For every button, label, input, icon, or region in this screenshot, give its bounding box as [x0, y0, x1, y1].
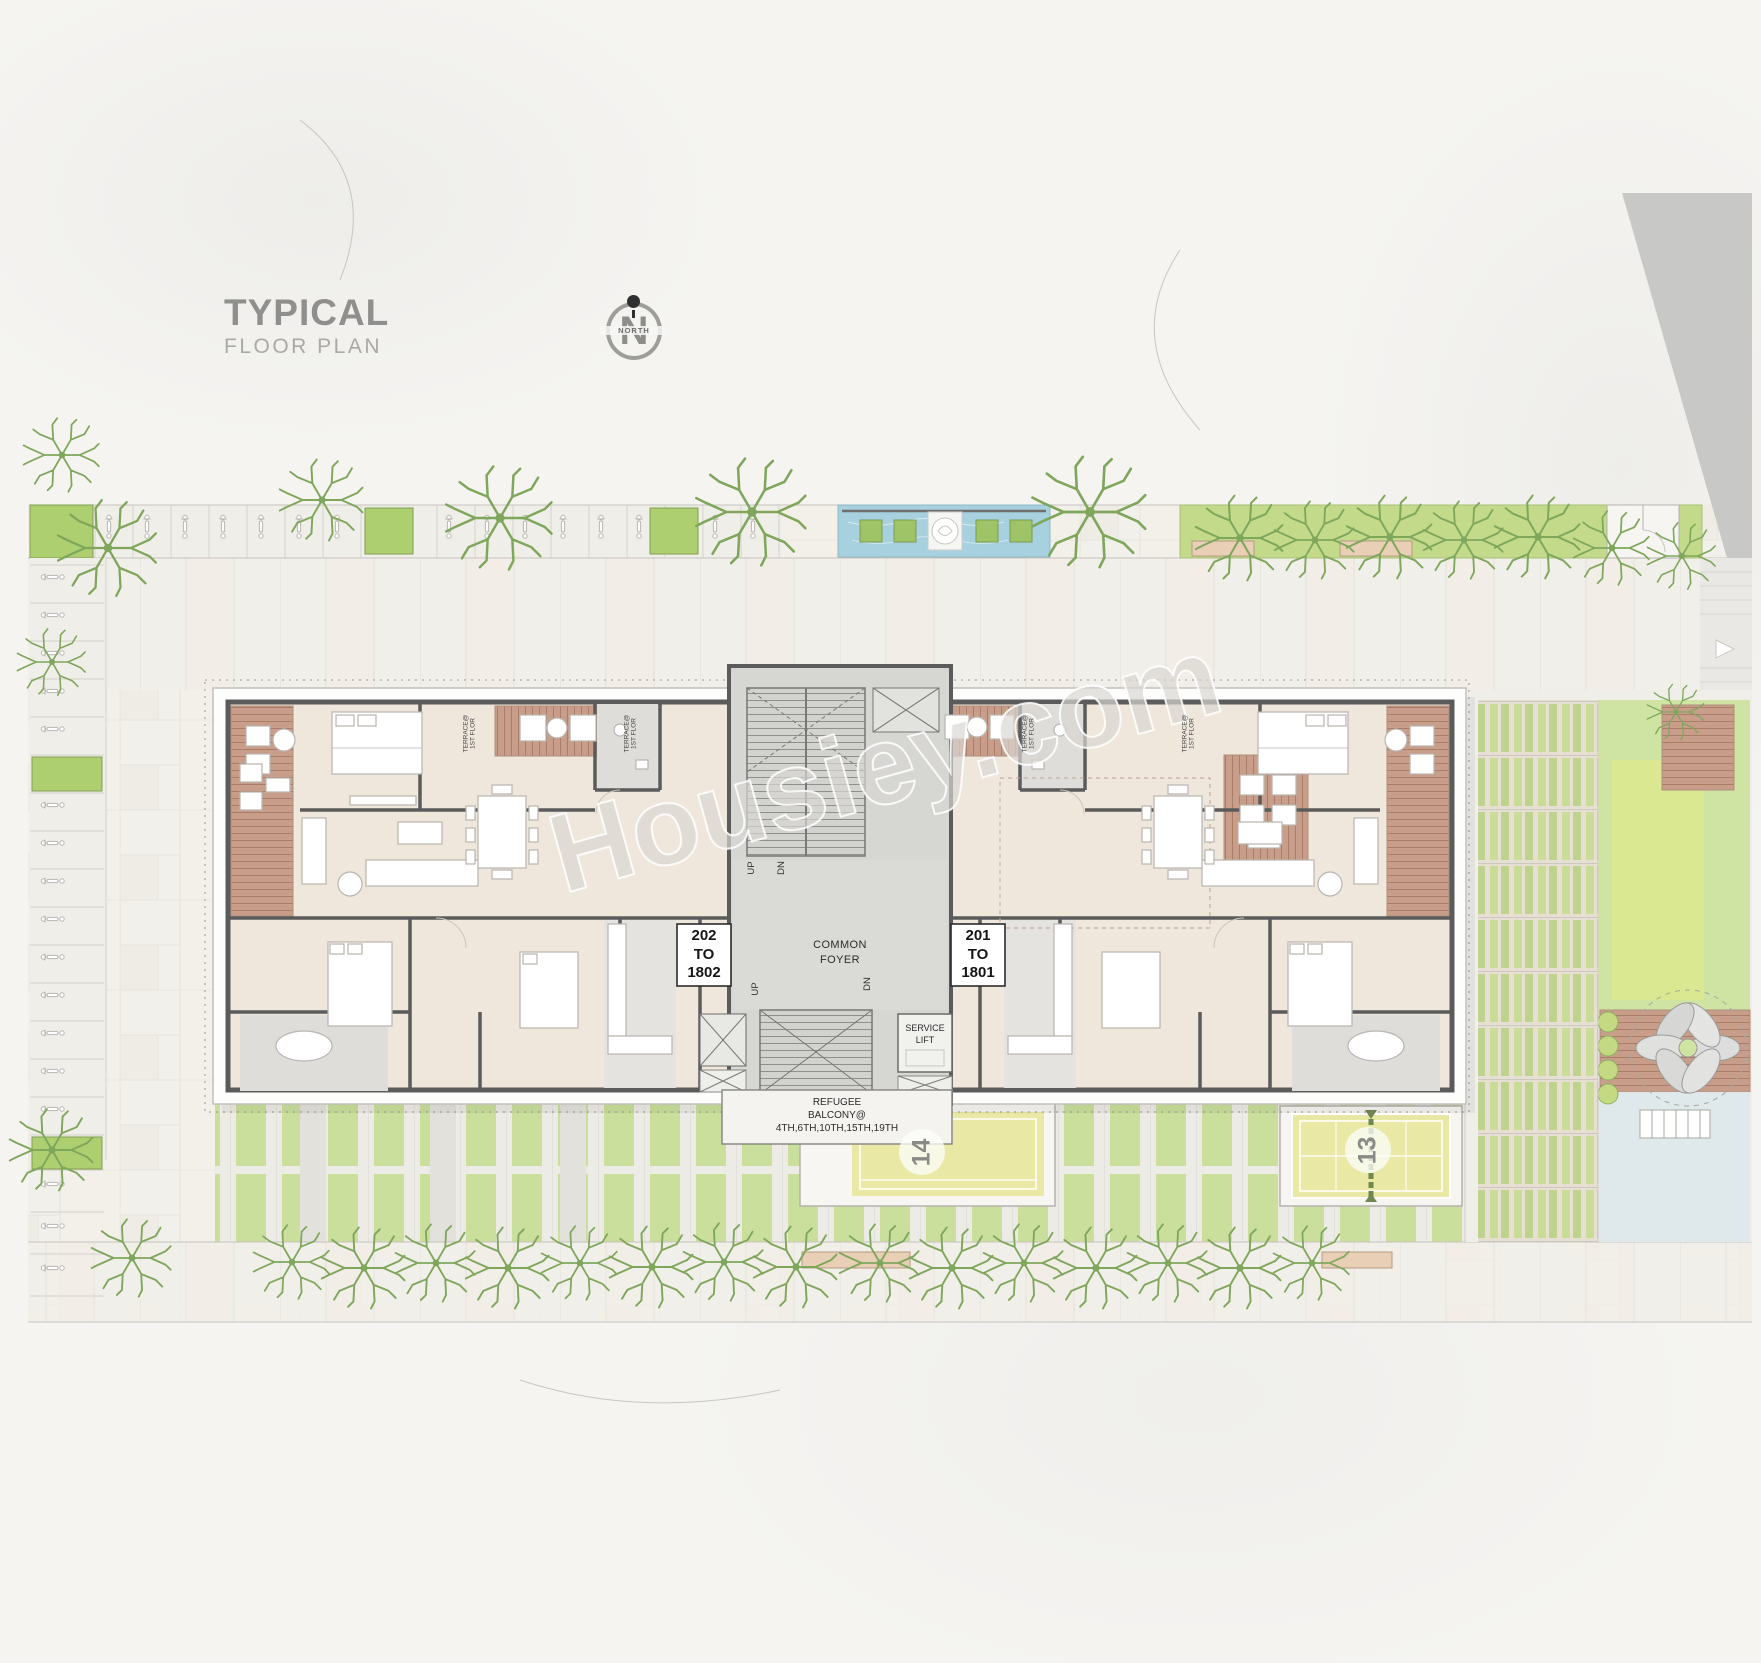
right-path — [1700, 558, 1752, 690]
bush — [1598, 1012, 1618, 1032]
terrace-label: TERRACE@ 1ST FLOR — [624, 706, 639, 762]
planter — [365, 508, 413, 554]
bush — [1598, 1036, 1618, 1056]
planter — [650, 508, 698, 554]
water-planter — [1010, 520, 1032, 542]
north-stem-icon — [632, 310, 635, 318]
north-dot-icon — [627, 295, 640, 308]
court-13-badge: 13 — [1345, 1127, 1391, 1173]
common-foyer-area — [733, 860, 947, 1010]
bench — [1322, 1252, 1392, 1268]
water-planter — [860, 520, 882, 542]
unit-left-top-floor: 1802 — [687, 964, 720, 983]
stairs-up-label: UP — [750, 974, 762, 1004]
court-14-badge: 14 — [899, 1129, 945, 1175]
tree-icon — [24, 418, 99, 492]
right-garden — [1465, 690, 1752, 1242]
bush — [1598, 1084, 1618, 1104]
water-feature — [838, 505, 1050, 557]
unit-left-to: TO — [694, 946, 715, 965]
site-plan-svg — [0, 0, 1761, 1663]
page-title: TYPICAL — [224, 294, 389, 331]
bench — [1192, 541, 1254, 556]
planter — [32, 757, 102, 791]
water-planter — [976, 520, 998, 542]
unit-right-label: 201 TO 1801 — [951, 924, 1005, 986]
stairs-dn-label: DN — [862, 969, 874, 999]
site-boundary-triangle — [1622, 193, 1752, 558]
unit-left-label: 202 TO 1802 — [677, 924, 731, 986]
unit-right-to: TO — [968, 946, 989, 965]
bush — [1598, 1060, 1618, 1080]
north-badge: N NORTH — [606, 302, 662, 360]
floor-plan-page: TYPICAL FLOOR PLAN N NORTH Housiey.com 2… — [0, 0, 1761, 1663]
common-foyer-label: COMMON FOYER — [742, 938, 938, 969]
page-subtitle: FLOOR PLAN — [224, 336, 389, 357]
north-label: NORTH — [600, 326, 668, 335]
terrace-label: TERRACE@ 1ST FLOR — [1022, 706, 1037, 762]
planter — [32, 1137, 102, 1169]
unit-right-number: 201 — [965, 927, 990, 946]
terrace-label: TERRACE@ 1ST FLOR — [1182, 706, 1197, 762]
unit-right-top-floor: 1801 — [961, 964, 994, 983]
stairs-up-label: UP — [746, 853, 758, 883]
water-planter — [894, 520, 916, 542]
unit-left-number: 202 — [691, 927, 716, 946]
planter — [30, 505, 93, 558]
building — [205, 666, 1475, 1144]
sculpture-icon — [932, 518, 958, 544]
stairs-dn-label: DN — [776, 853, 788, 883]
page-title-block: TYPICAL FLOOR PLAN — [224, 294, 389, 357]
service-lift-label: SERVICE LIFT — [898, 1022, 952, 1046]
ladder-bench — [1640, 1110, 1710, 1138]
terrace-label: TERRACE@ 1ST FLOR — [463, 706, 478, 762]
planting-beds — [1478, 700, 1598, 1242]
